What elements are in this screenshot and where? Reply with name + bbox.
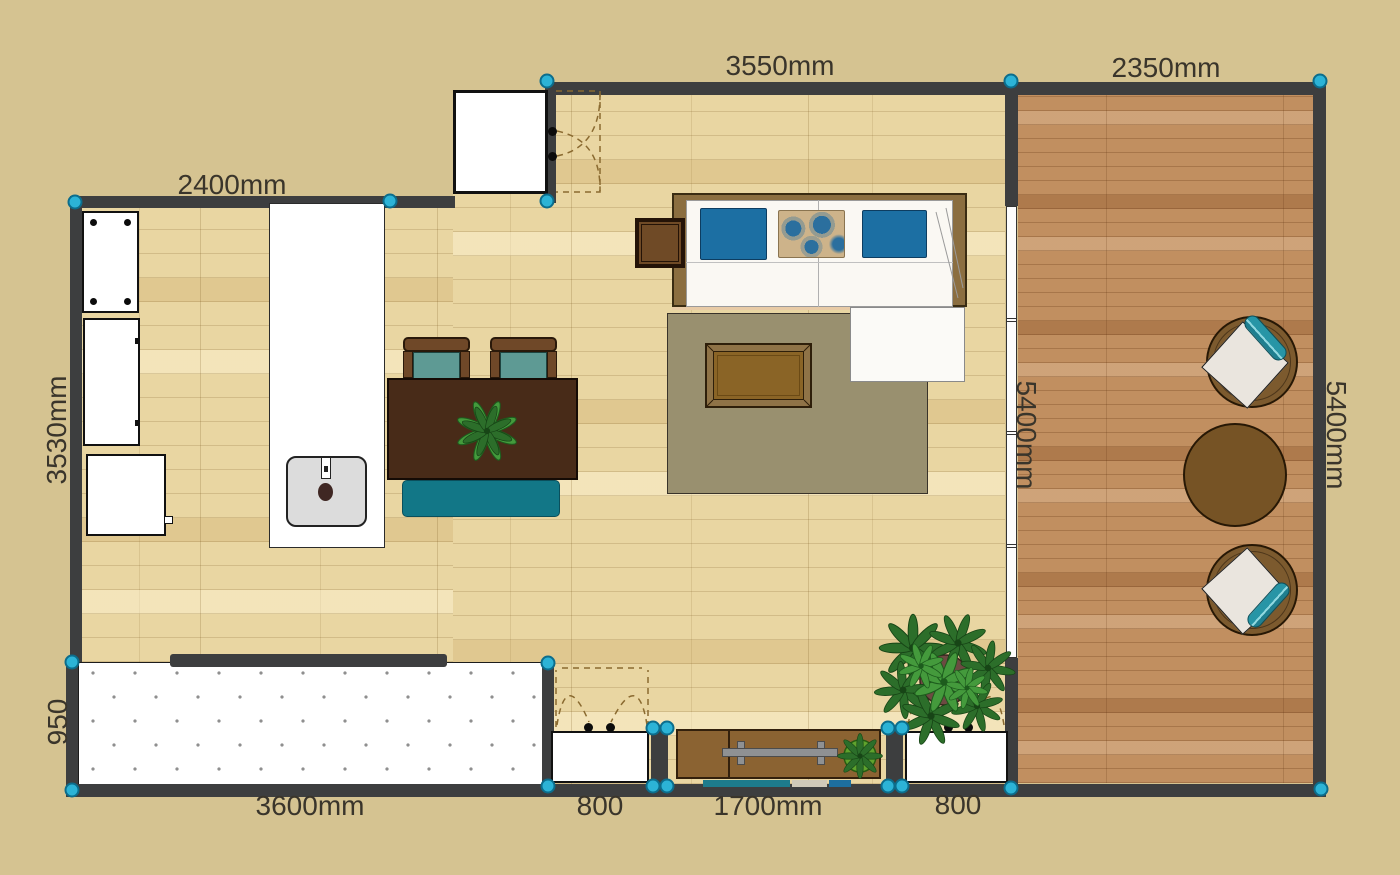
side-table-inner-line [641,224,679,262]
corner-handle[interactable] [646,779,661,794]
sofa-pillow-blue [700,208,767,260]
sofa-front-edge [672,307,850,310]
cabinet-knob [90,219,97,226]
sideboard-mat-blue [829,780,851,787]
dining-chair-arm [490,351,500,378]
corner-handle[interactable] [541,779,556,794]
corner-handle[interactable] [383,194,398,209]
corner-handle[interactable] [540,74,555,89]
corner-handle[interactable] [660,721,675,736]
bottom-door-left[interactable] [551,731,649,783]
door-hinge [548,152,557,161]
cabinet-knob [90,298,97,305]
door-hinge [606,723,615,732]
door-hinge [584,723,593,732]
glass-panel-divider [1007,318,1016,322]
sofa-pillow-blue [862,210,927,258]
dining-chair-arm [547,351,557,378]
base-cabinet[interactable] [86,454,166,536]
divider-wall-top[interactable] [1005,82,1018,206]
dining-table[interactable] [387,378,578,480]
sofa-back-line [686,262,953,263]
dim-label-3600: 3600mm [256,790,365,822]
corner-handle[interactable] [895,721,910,736]
cabinet-hinge [135,420,140,426]
corner-handle[interactable] [65,783,80,798]
coffee-table[interactable] [705,343,812,408]
sofa-chaise[interactable] [850,307,965,382]
dim-label-950: 950 [42,699,74,746]
dining-chair-back[interactable] [490,337,557,352]
dim-label-800-left: 800 [577,790,624,822]
side-table[interactable] [635,218,685,268]
corner-handle[interactable] [881,779,896,794]
dining-chair-arm [403,351,413,378]
cabinet-knob [124,219,131,226]
cabinet-knob [124,298,131,305]
floor-plan-canvas: 2400mm 3550mm 2350mm 3530mm 950 3600mm 8… [0,0,1400,875]
cabinet-hinge [135,338,140,344]
dining-rug[interactable] [402,480,560,517]
corner-handle[interactable] [65,655,80,670]
dining-chair-seat[interactable] [413,352,460,380]
round-table[interactable] [1183,423,1287,527]
tv-bar[interactable] [722,748,838,757]
dim-label-5400-inner: 5400mm [1010,381,1042,490]
corner-handle[interactable] [1004,781,1019,796]
corner-handle[interactable] [895,779,910,794]
corner-handle[interactable] [646,721,661,736]
dim-label-800-right: 800 [935,789,982,821]
corner-handle[interactable] [1004,74,1019,89]
door-hinge [944,723,953,732]
bottom-door-right[interactable] [905,731,1008,783]
wall-cabinet-middle[interactable] [83,318,140,446]
door-hinge [964,723,973,732]
corner-handle[interactable] [1313,74,1328,89]
corner-handle[interactable] [1314,782,1329,797]
sideboard-mat-gray [792,780,827,787]
wall-cabinet-top[interactable] [82,211,139,313]
corner-handle[interactable] [541,656,556,671]
entry-door-leaf[interactable] [453,90,548,194]
dim-label-1700: 1700mm [714,790,823,822]
balcony-window-bar[interactable] [170,654,447,667]
coffee-table-panel [713,351,804,400]
corner-handle[interactable] [881,721,896,736]
dining-chair-back[interactable] [403,337,470,352]
dim-label-2400: 2400mm [178,169,287,201]
dining-chair-seat[interactable] [500,352,547,380]
cabinet-handle [164,516,173,524]
coffee-table-inner-line [717,355,800,396]
sink-faucet-knob [324,466,328,472]
corner-handle[interactable] [540,194,555,209]
corner-handle[interactable] [68,195,83,210]
dim-label-2350: 2350mm [1112,52,1221,84]
dim-label-5400-outer: 5400mm [1320,381,1352,490]
sofa-pillow-floral [778,210,845,258]
dim-label-3530: 3530mm [41,376,73,485]
balcony-area [78,662,544,788]
dim-label-3550: 3550mm [726,50,835,82]
corner-handle[interactable] [660,779,675,794]
glass-panel-divider [1007,544,1016,548]
door-hinge [548,127,557,136]
sideboard-mat-teal [703,780,790,787]
dining-chair-arm [460,351,470,378]
sink-drain [318,483,333,501]
